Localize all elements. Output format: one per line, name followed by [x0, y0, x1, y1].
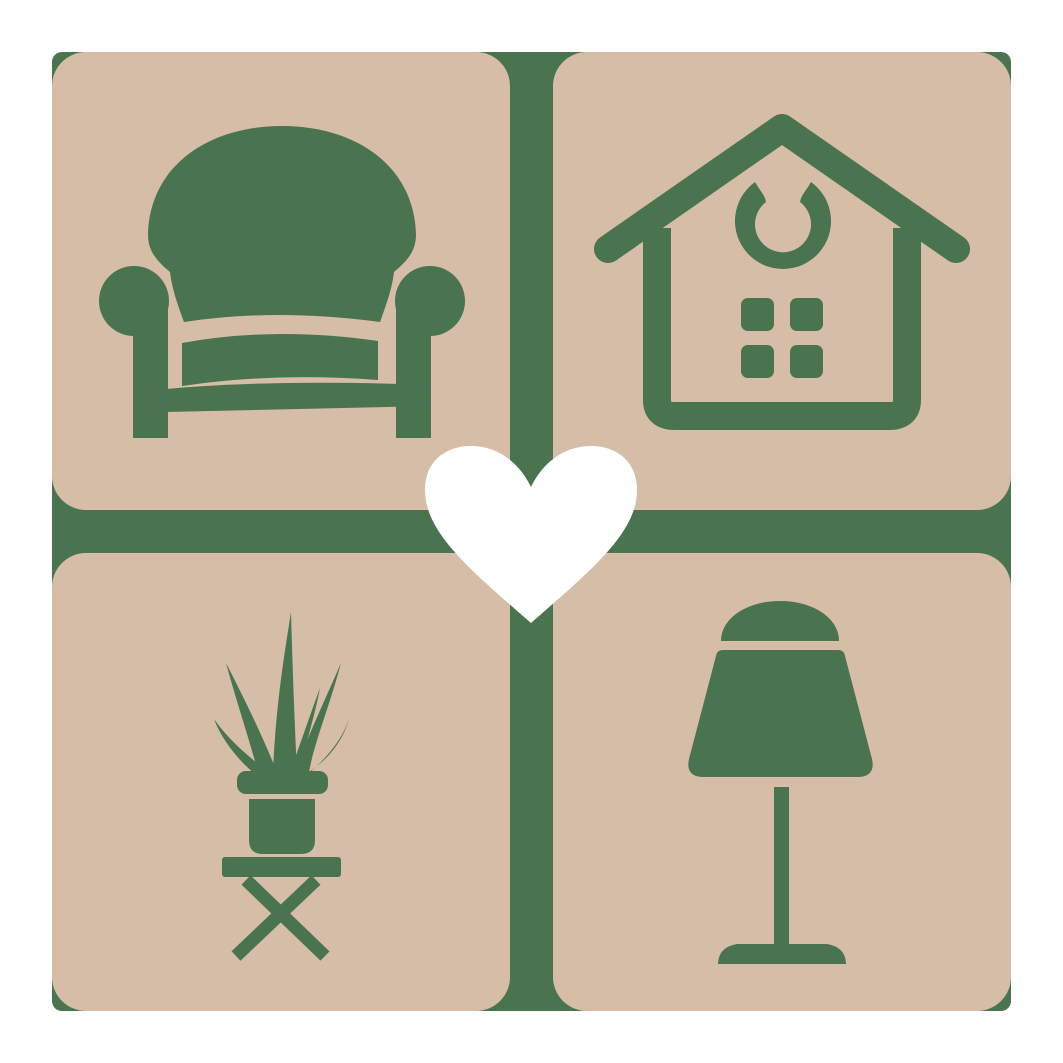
house-window [790, 345, 823, 378]
house-window [741, 345, 774, 378]
armchair-left-leg [133, 300, 168, 438]
stool-top [222, 857, 341, 877]
armchair-right-leg [396, 300, 431, 438]
plant-pot-rim [237, 771, 328, 794]
lamp-stem [774, 787, 789, 947]
armchair-back [148, 126, 416, 322]
logo-canvas [0, 0, 1063, 1063]
lamp-shade [688, 650, 872, 777]
house-window [790, 298, 823, 331]
plant-pot-body [249, 799, 315, 854]
logo [0, 0, 1063, 1063]
lamp-base [718, 944, 846, 964]
house-window [741, 298, 774, 331]
